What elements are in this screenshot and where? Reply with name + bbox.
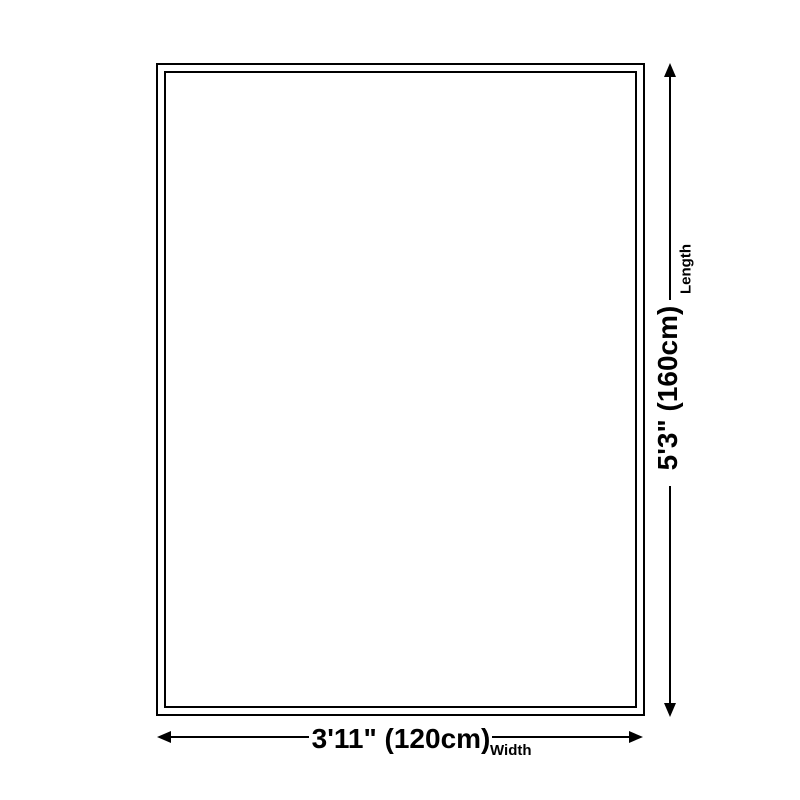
rug-outline [156,63,645,716]
arrow-down-icon [664,703,676,717]
arrow-right-icon [629,731,643,743]
length-dimension-line-bottom [669,486,671,703]
arrow-up-icon [664,63,676,77]
length-label: Length [679,244,694,294]
length-dimension-line-top [669,77,671,300]
width-label: Width [490,743,532,758]
length-value: 5'3" (160cm) [654,306,682,471]
rug-inner-border [164,71,637,708]
arrow-left-icon [157,731,171,743]
width-dimension-line-right [492,736,630,738]
product-dimension-diagram: 5'3" (160cm) Length 3'11" (120cm) Width [0,0,800,800]
width-value: 3'11" (120cm) [312,725,491,753]
width-dimension-line-left [170,736,309,738]
